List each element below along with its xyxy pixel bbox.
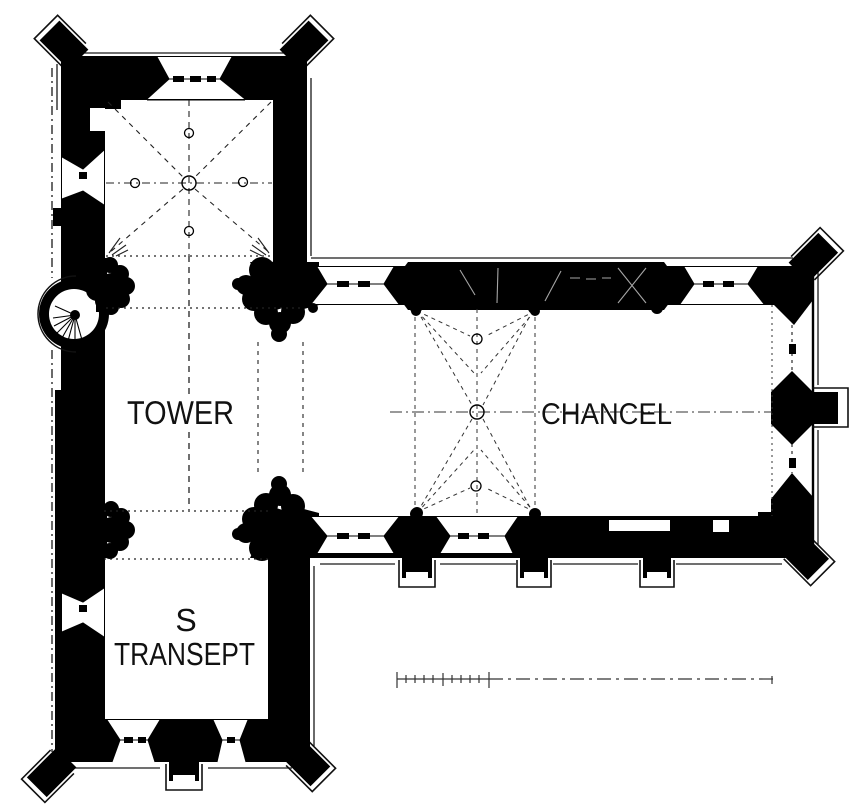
- svg-text:CHANCEL: CHANCEL: [541, 398, 672, 431]
- svg-text:TRANSEPT: TRANSEPT: [114, 636, 255, 672]
- svg-text:S: S: [175, 602, 196, 638]
- svg-text:TOWER: TOWER: [127, 394, 234, 431]
